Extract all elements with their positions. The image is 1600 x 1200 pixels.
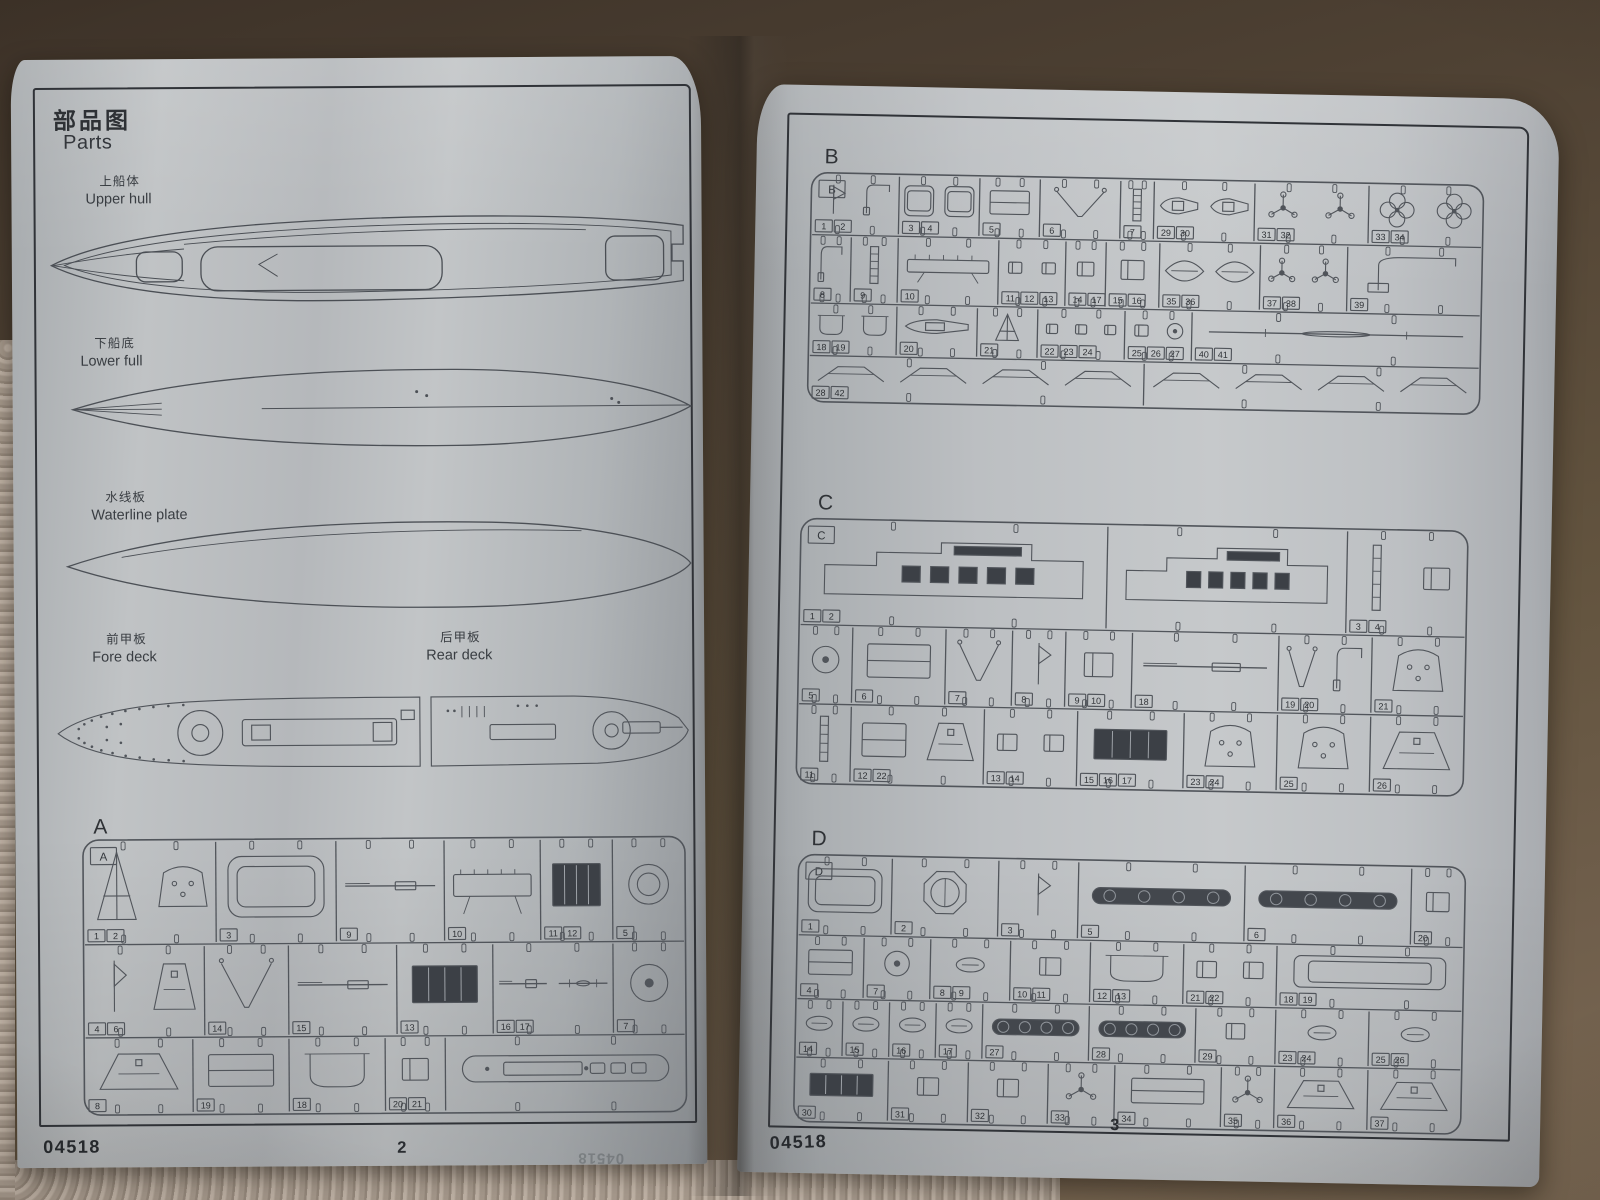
svg-text:6: 6 (861, 691, 866, 701)
svg-text:22: 22 (1209, 993, 1219, 1003)
sprue-diagram-b: B123456729303132333489101112131417151635… (806, 171, 1485, 416)
svg-text:7: 7 (955, 693, 960, 703)
svg-text:22: 22 (876, 771, 886, 781)
svg-text:B: B (828, 184, 836, 196)
svg-text:20: 20 (393, 1099, 403, 1109)
svg-text:25: 25 (1132, 348, 1142, 358)
svg-text:36: 36 (1281, 1117, 1291, 1127)
svg-text:9: 9 (346, 930, 351, 940)
svg-text:6: 6 (1049, 226, 1054, 236)
svg-text:27: 27 (1170, 349, 1180, 359)
svg-text:35: 35 (1166, 296, 1176, 306)
svg-text:23: 23 (1190, 777, 1200, 787)
svg-text:2: 2 (829, 612, 834, 622)
label-fore-deck-cn: 前甲板 (92, 631, 157, 648)
svg-text:9: 9 (860, 290, 865, 300)
svg-text:10: 10 (1091, 696, 1101, 706)
figure-waterline-plate (61, 514, 697, 616)
svg-text:12: 12 (1024, 294, 1034, 304)
svg-text:19: 19 (1302, 995, 1312, 1005)
left-page: 部品图 Parts 上船体 Upper hull (11, 56, 708, 1168)
svg-text:7: 7 (873, 987, 878, 997)
svg-text:11: 11 (804, 770, 814, 780)
svg-text:24: 24 (1082, 347, 1092, 357)
left-page-frame: 部品图 Parts 上船体 Upper hull (33, 84, 697, 1127)
svg-text:7: 7 (623, 1021, 628, 1031)
svg-text:39: 39 (1354, 300, 1364, 310)
svg-text:24: 24 (1301, 1053, 1311, 1063)
page-number-right: 3 (1110, 1116, 1120, 1135)
svg-text:13: 13 (1043, 294, 1053, 304)
svg-text:18: 18 (1139, 697, 1149, 707)
svg-text:29: 29 (1202, 1051, 1212, 1061)
svg-text:17: 17 (943, 1046, 953, 1056)
svg-text:18: 18 (1283, 994, 1293, 1004)
svg-text:21: 21 (1378, 701, 1388, 711)
svg-text:4: 4 (927, 223, 932, 233)
svg-text:10: 10 (1017, 989, 1027, 999)
svg-text:41: 41 (1218, 350, 1228, 360)
svg-text:9: 9 (1075, 695, 1080, 705)
show-through-text: 04518 (577, 1149, 624, 1167)
svg-text:16: 16 (896, 1045, 906, 1055)
svg-text:32: 32 (975, 1111, 985, 1121)
svg-text:31: 31 (1261, 230, 1271, 240)
svg-text:23: 23 (1063, 347, 1073, 357)
svg-text:33: 33 (1376, 232, 1386, 242)
svg-text:30: 30 (1180, 228, 1190, 238)
svg-text:32: 32 (1280, 230, 1290, 240)
label-rear-deck: 后甲板 Rear deck (426, 629, 492, 666)
svg-text:26: 26 (1151, 348, 1161, 358)
svg-text:13: 13 (991, 773, 1001, 783)
svg-text:3: 3 (226, 930, 231, 940)
svg-text:3: 3 (1356, 622, 1361, 632)
svg-text:14: 14 (212, 1024, 222, 1034)
svg-text:8: 8 (940, 988, 945, 998)
svg-text:11: 11 (1006, 293, 1016, 303)
figure-lower-hull (66, 360, 697, 456)
svg-text:26: 26 (1395, 1055, 1405, 1065)
svg-text:21: 21 (984, 345, 994, 355)
svg-text:31: 31 (895, 1109, 905, 1119)
sprue-diagram-c: C123456789101819202111122213141516172324… (795, 517, 1470, 798)
svg-text:42: 42 (834, 388, 844, 398)
svg-text:7: 7 (1130, 227, 1135, 237)
svg-text:19: 19 (1285, 700, 1295, 710)
svg-text:8: 8 (820, 290, 825, 300)
svg-text:19: 19 (201, 1100, 211, 1110)
svg-text:6: 6 (114, 1024, 119, 1034)
label-rear-deck-cn: 后甲板 (426, 629, 492, 646)
svg-text:33: 33 (1055, 1112, 1065, 1122)
svg-text:25: 25 (1376, 1055, 1386, 1065)
page-title-en: Parts (51, 131, 112, 154)
svg-text:A: A (100, 852, 108, 864)
svg-text:25: 25 (1284, 779, 1294, 789)
svg-text:28: 28 (1096, 1049, 1106, 1059)
svg-text:13: 13 (405, 1022, 415, 1032)
svg-text:26: 26 (1377, 781, 1387, 791)
label-waterline-plate-cn: 水线板 (91, 489, 187, 506)
right-page-frame: B B1234567293031323334891011121314171516… (768, 113, 1529, 1142)
sprue-letter-d: D (811, 827, 828, 851)
svg-text:3: 3 (1007, 925, 1012, 935)
svg-text:18: 18 (297, 1100, 307, 1110)
svg-text:15: 15 (1113, 295, 1123, 305)
svg-text:14: 14 (1072, 295, 1082, 305)
right-page: B B1234567293031323334891011121314171516… (737, 84, 1560, 1187)
svg-text:18: 18 (816, 342, 826, 352)
svg-text:30: 30 (802, 1108, 812, 1118)
sprue-diagram-d: D123562047891011121321221819141516172728… (792, 853, 1467, 1136)
kit-number-right: 04518 (769, 1131, 827, 1154)
svg-text:4: 4 (1375, 622, 1380, 632)
svg-text:17: 17 (520, 1022, 530, 1032)
svg-text:14: 14 (803, 1044, 813, 1054)
svg-text:10: 10 (452, 929, 462, 939)
svg-text:40: 40 (1199, 349, 1209, 359)
svg-text:1: 1 (821, 221, 826, 231)
svg-text:20: 20 (904, 344, 914, 354)
label-fore-deck-en: Fore deck (92, 648, 157, 668)
svg-text:21: 21 (1190, 993, 1200, 1003)
svg-text:15: 15 (296, 1023, 306, 1033)
svg-text:12: 12 (1097, 991, 1107, 1001)
label-lower-hull-cn: 下船底 (80, 335, 142, 352)
svg-text:38: 38 (1286, 299, 1296, 309)
svg-text:19: 19 (835, 342, 845, 352)
svg-text:5: 5 (808, 690, 813, 700)
svg-text:4: 4 (95, 1024, 100, 1034)
label-rear-deck-en: Rear deck (426, 646, 492, 666)
label-upper-hull-cn: 上船体 (85, 173, 151, 190)
svg-text:36: 36 (1185, 297, 1195, 307)
svg-text:8: 8 (1021, 694, 1026, 704)
svg-text:37: 37 (1267, 298, 1277, 308)
svg-text:17: 17 (1091, 295, 1101, 305)
svg-text:9: 9 (959, 988, 964, 998)
sprue-letter-c: C (818, 491, 835, 515)
svg-text:23: 23 (1282, 1053, 1292, 1063)
svg-text:4: 4 (807, 985, 812, 995)
svg-text:11: 11 (549, 928, 558, 938)
svg-text:21: 21 (412, 1099, 422, 1109)
svg-text:8: 8 (95, 1101, 100, 1111)
sprue-letter-b: B (824, 145, 839, 169)
page-number-left: 2 (397, 1139, 406, 1158)
svg-text:2: 2 (840, 222, 845, 232)
svg-text:5: 5 (989, 225, 994, 235)
svg-text:5: 5 (623, 928, 628, 938)
photo-scene: 部品图 Parts 上船体 Upper hull (0, 0, 1600, 1200)
svg-text:2: 2 (113, 931, 118, 941)
svg-text:1: 1 (808, 921, 813, 931)
svg-text:35: 35 (1228, 1116, 1238, 1126)
svg-text:14: 14 (1010, 773, 1020, 783)
svg-text:29: 29 (1161, 228, 1171, 238)
figure-deck-plan (50, 663, 696, 800)
label-fore-deck: 前甲板 Fore deck (92, 631, 157, 668)
svg-text:37: 37 (1374, 1119, 1384, 1129)
svg-text:1: 1 (94, 931, 99, 941)
svg-text:1: 1 (810, 611, 815, 621)
svg-text:10: 10 (905, 291, 915, 301)
svg-text:20: 20 (1304, 700, 1314, 710)
svg-text:16: 16 (501, 1022, 511, 1032)
svg-text:15: 15 (849, 1045, 859, 1055)
svg-text:28: 28 (815, 388, 825, 398)
svg-text:12: 12 (567, 928, 577, 938)
svg-text:16: 16 (1103, 775, 1113, 785)
sprue-letter-a: A (93, 816, 108, 840)
svg-text:20: 20 (1418, 933, 1428, 943)
svg-text:C: C (817, 530, 826, 542)
svg-text:2: 2 (901, 923, 906, 933)
svg-text:5: 5 (1087, 927, 1092, 937)
svg-text:34: 34 (1121, 1114, 1131, 1124)
svg-text:17: 17 (1122, 776, 1132, 786)
kit-number-left: 04518 (43, 1137, 101, 1158)
svg-text:16: 16 (1132, 296, 1142, 306)
svg-text:24: 24 (1209, 777, 1219, 787)
svg-text:27: 27 (989, 1047, 999, 1057)
svg-text:12: 12 (857, 771, 867, 781)
svg-text:13: 13 (1116, 991, 1126, 1001)
figure-upper-hull (43, 198, 689, 324)
sprue-diagram-a: A123910111254614151316177819182021 (81, 835, 688, 1117)
svg-text:11: 11 (1036, 990, 1046, 1000)
svg-text:3: 3 (908, 223, 913, 233)
svg-text:15: 15 (1084, 775, 1094, 785)
svg-text:6: 6 (1254, 930, 1259, 940)
svg-text:22: 22 (1044, 346, 1054, 356)
svg-text:34: 34 (1395, 232, 1405, 242)
